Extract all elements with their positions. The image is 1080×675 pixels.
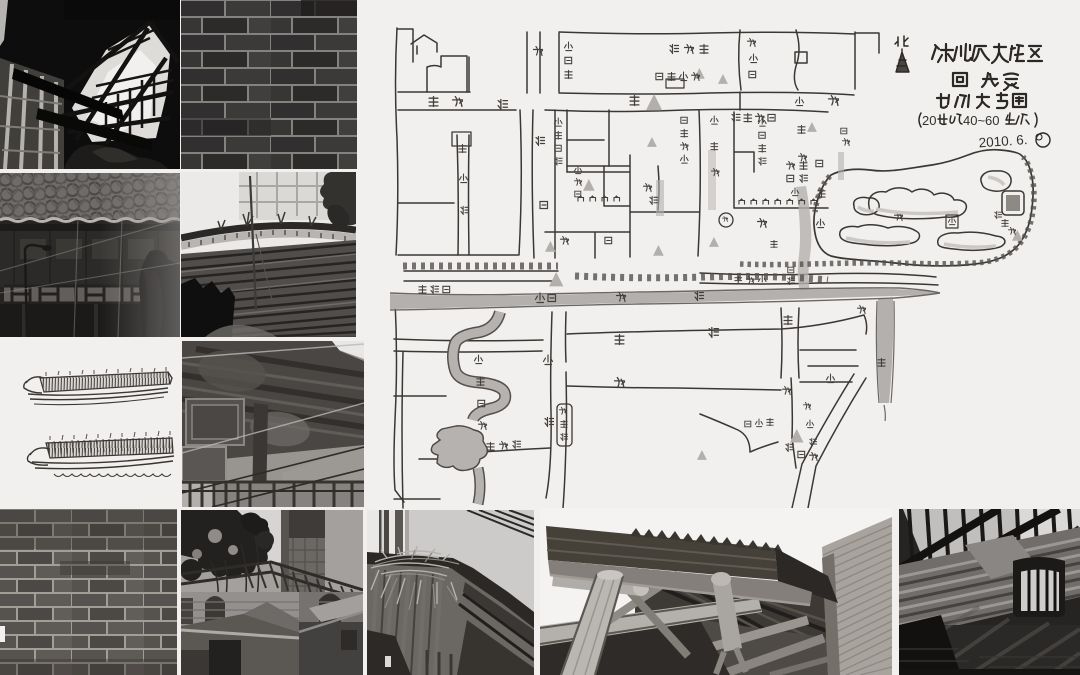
svg-text:40~60: 40~60 <box>963 113 1000 128</box>
svg-text:2010. 6.: 2010. 6. <box>978 132 1028 150</box>
svg-text:20: 20 <box>922 113 936 128</box>
